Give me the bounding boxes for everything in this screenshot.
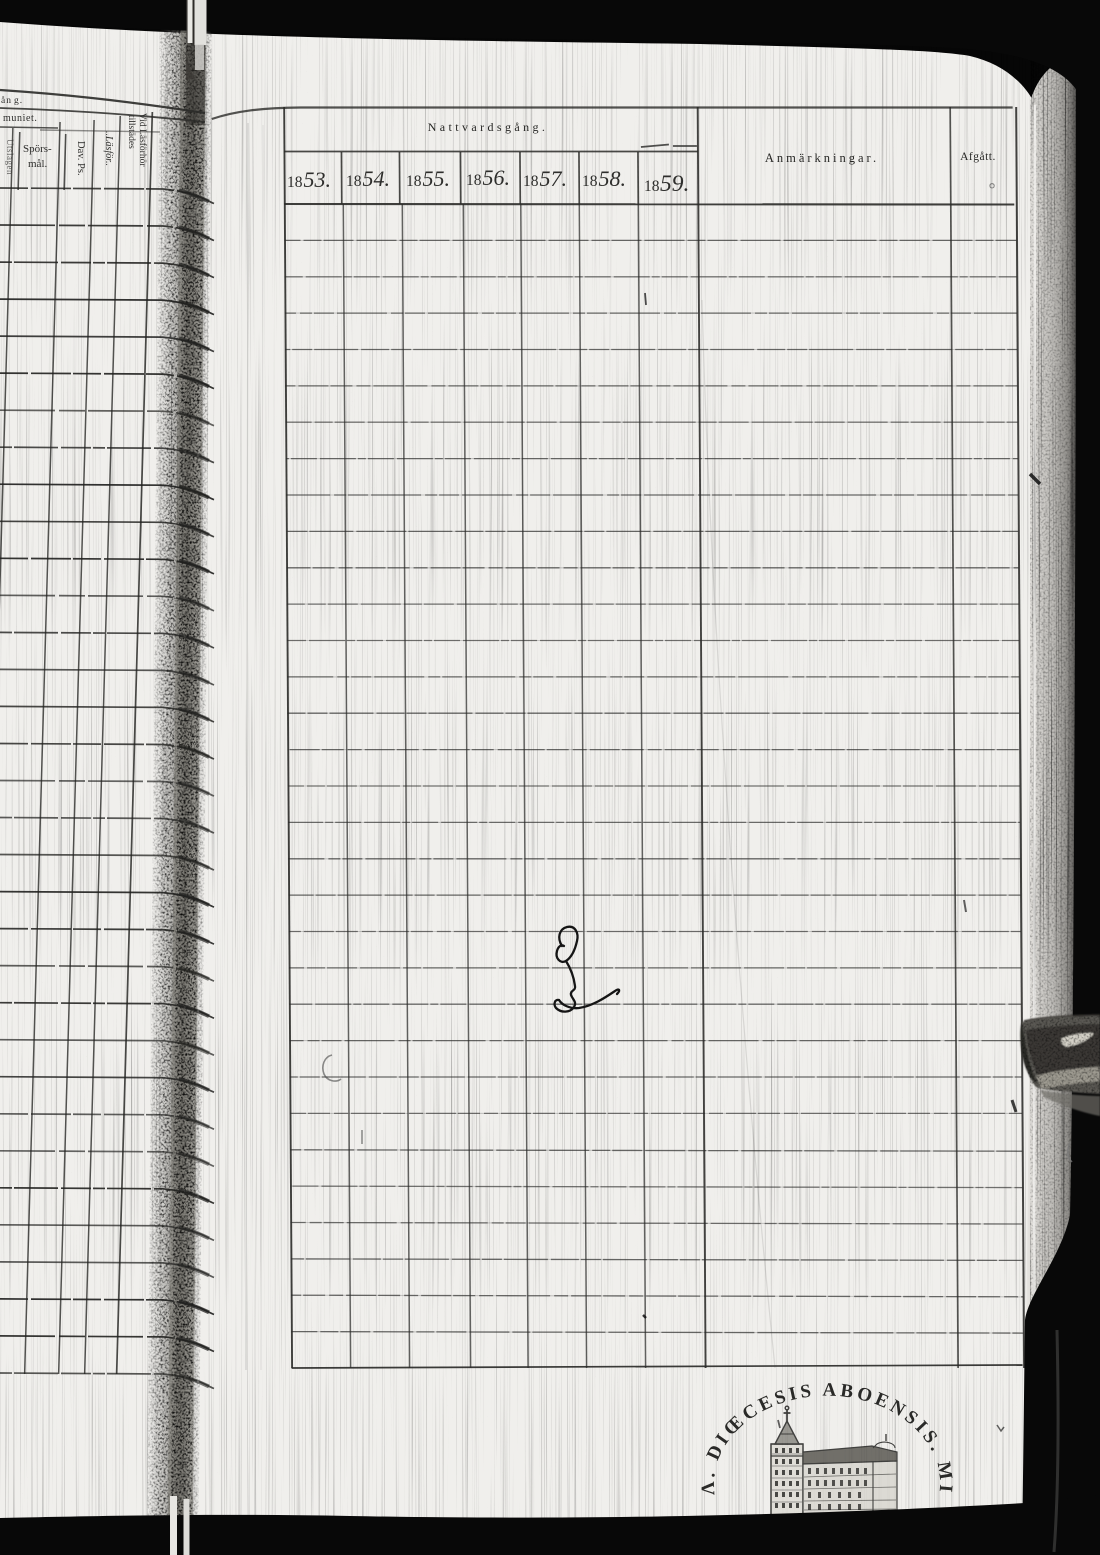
svg-text:..Läsför..: ..Läsför.. [103, 131, 114, 166]
svg-text:muniet.: muniet. [3, 113, 37, 124]
svg-text:ång.: ång. [1, 95, 23, 106]
svg-text:Nattvardsgång.: Nattvardsgång. [428, 120, 549, 134]
svg-text:Spörs-: Spörs- [23, 143, 52, 155]
svg-text:mål.: mål. [28, 158, 47, 170]
svg-text:Anmärkningar.: Anmärkningar. [765, 151, 879, 165]
svg-text:Utslagen: Utslagen [5, 139, 15, 175]
svg-text:Dav. Ps.: Dav. Ps. [75, 141, 86, 176]
svg-text:Afgått.: Afgått. [960, 150, 996, 163]
